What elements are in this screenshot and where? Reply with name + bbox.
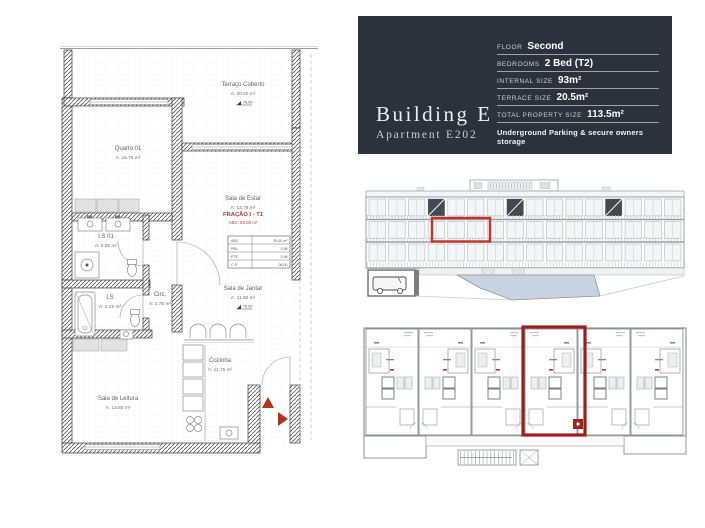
svg-text:PBL: PBL <box>231 247 238 251</box>
spec-label: FLOOR <box>497 44 522 51</box>
svg-text:A: 11.75 m²: A: 11.75 m² <box>208 367 233 373</box>
spec-value: 2 Bed (T2) <box>545 58 593 69</box>
garage-car-drawing <box>368 270 419 296</box>
spec-note: Underground Parking & secure owners stor… <box>497 128 659 146</box>
apartment-floorplan: 76.50 76.50 Terraço Coberto A: 20.50 m² … <box>40 30 330 490</box>
room-label-kitchen: Cozinha <box>209 358 232 364</box>
panel-title-block: Building E Apartment E202 <box>376 102 493 141</box>
svg-text:C.P.: C.P. <box>231 263 238 267</box>
dining-level-text: 76.50 <box>243 305 253 309</box>
spec-value: 93m² <box>558 75 581 86</box>
apartment-name: Apartment E202 <box>376 129 493 141</box>
spec-label: INTERNAL SIZE <box>497 78 553 85</box>
room-label-dining: Sala de Jantar <box>224 286 263 292</box>
svg-text:A: 20.50 m²: A: 20.50 m² <box>231 91 256 97</box>
roof-edge-line <box>60 47 318 49</box>
info-panel: Building E Apartment E202 FLOOR Second B… <box>358 16 672 154</box>
svg-text:A: 11.50 m²: A: 11.50 m² <box>231 295 256 301</box>
svg-text:A: 4.25 m²: A: 4.25 m² <box>99 304 122 310</box>
spec-label: TERRACE SIZE <box>497 95 552 102</box>
floor-overview-plan <box>362 322 690 502</box>
overview-drawing <box>364 328 686 465</box>
elevator-drawing <box>520 450 538 465</box>
spec-row-floor: FLOOR Second <box>497 41 659 55</box>
dashed-boundary-lines <box>300 54 311 440</box>
stairs-drawing <box>458 450 516 465</box>
room-label-hall: Circ. <box>154 292 167 298</box>
svg-text:06.00: 06.00 <box>279 263 288 267</box>
spec-label: BEDROOMS <box>497 61 540 68</box>
svg-text:ABC: 93.00 m²: ABC: 93.00 m² <box>229 220 258 225</box>
spec-row-total-size: TOTAL PROPERTY SIZE 113.5m² <box>497 109 659 123</box>
spec-value: Second <box>527 41 563 52</box>
spec-value: 20.5m² <box>557 92 589 103</box>
svg-text:2.98: 2.98 <box>281 247 288 251</box>
spec-row-bedrooms: BEDROOMS 2 Bed (T2) <box>497 58 659 72</box>
pool-drawing <box>457 275 600 300</box>
spec-value: 113.5m² <box>587 109 624 120</box>
brochure-page: 76.50 76.50 Terraço Coberto A: 20.50 m² … <box>0 0 705 528</box>
svg-text:A: 13.50 m²: A: 13.50 m² <box>106 405 131 411</box>
terrace-level-text: 76.50 <box>243 101 253 105</box>
room-label-living: Sala de Estar <box>225 196 261 202</box>
spec-list: FLOOR Second BEDROOMS 2 Bed (T2) INTERNA… <box>497 41 659 146</box>
room-label-reading: Sala de Leitura <box>98 396 139 402</box>
room-label-terrace: Terraço Coberto <box>221 82 265 88</box>
spec-label: TOTAL PROPERTY SIZE <box>497 112 582 119</box>
svg-text:A: 2.75 m²: A: 2.75 m² <box>149 301 172 307</box>
svg-text:2.98: 2.98 <box>281 255 288 259</box>
spec-row-internal-size: INTERNAL SIZE 93m² <box>497 75 659 89</box>
elevation-drawing <box>366 180 684 300</box>
svg-text:93.00 m²: 93.00 m² <box>273 239 288 243</box>
building-elevation <box>362 178 690 310</box>
svg-text:ABC: ABC <box>231 239 239 243</box>
room-label-bath1: I.S 01 <box>98 234 114 240</box>
svg-text:PTE: PTE <box>231 255 239 259</box>
svg-text:A: 13.78 m²: A: 13.78 m² <box>231 205 256 211</box>
svg-text:A: 16.75 m²: A: 16.75 m² <box>116 155 141 161</box>
svg-text:A: 5.00 m²: A: 5.00 m² <box>95 243 118 249</box>
building-name: Building E <box>376 102 493 127</box>
room-label-bedroom: Quarto 01 <box>115 146 142 152</box>
room-label-bath2: I.S <box>106 295 113 301</box>
spec-row-terrace-size: TERRACE SIZE 20.5m² <box>497 92 659 106</box>
area-table: ABC 93.00 m² PBL 2.98 PTE 2.98 C.P. 06.0… <box>228 236 290 268</box>
svg-text:FRAÇÃO I - T1: FRAÇÃO I - T1 <box>223 211 264 218</box>
